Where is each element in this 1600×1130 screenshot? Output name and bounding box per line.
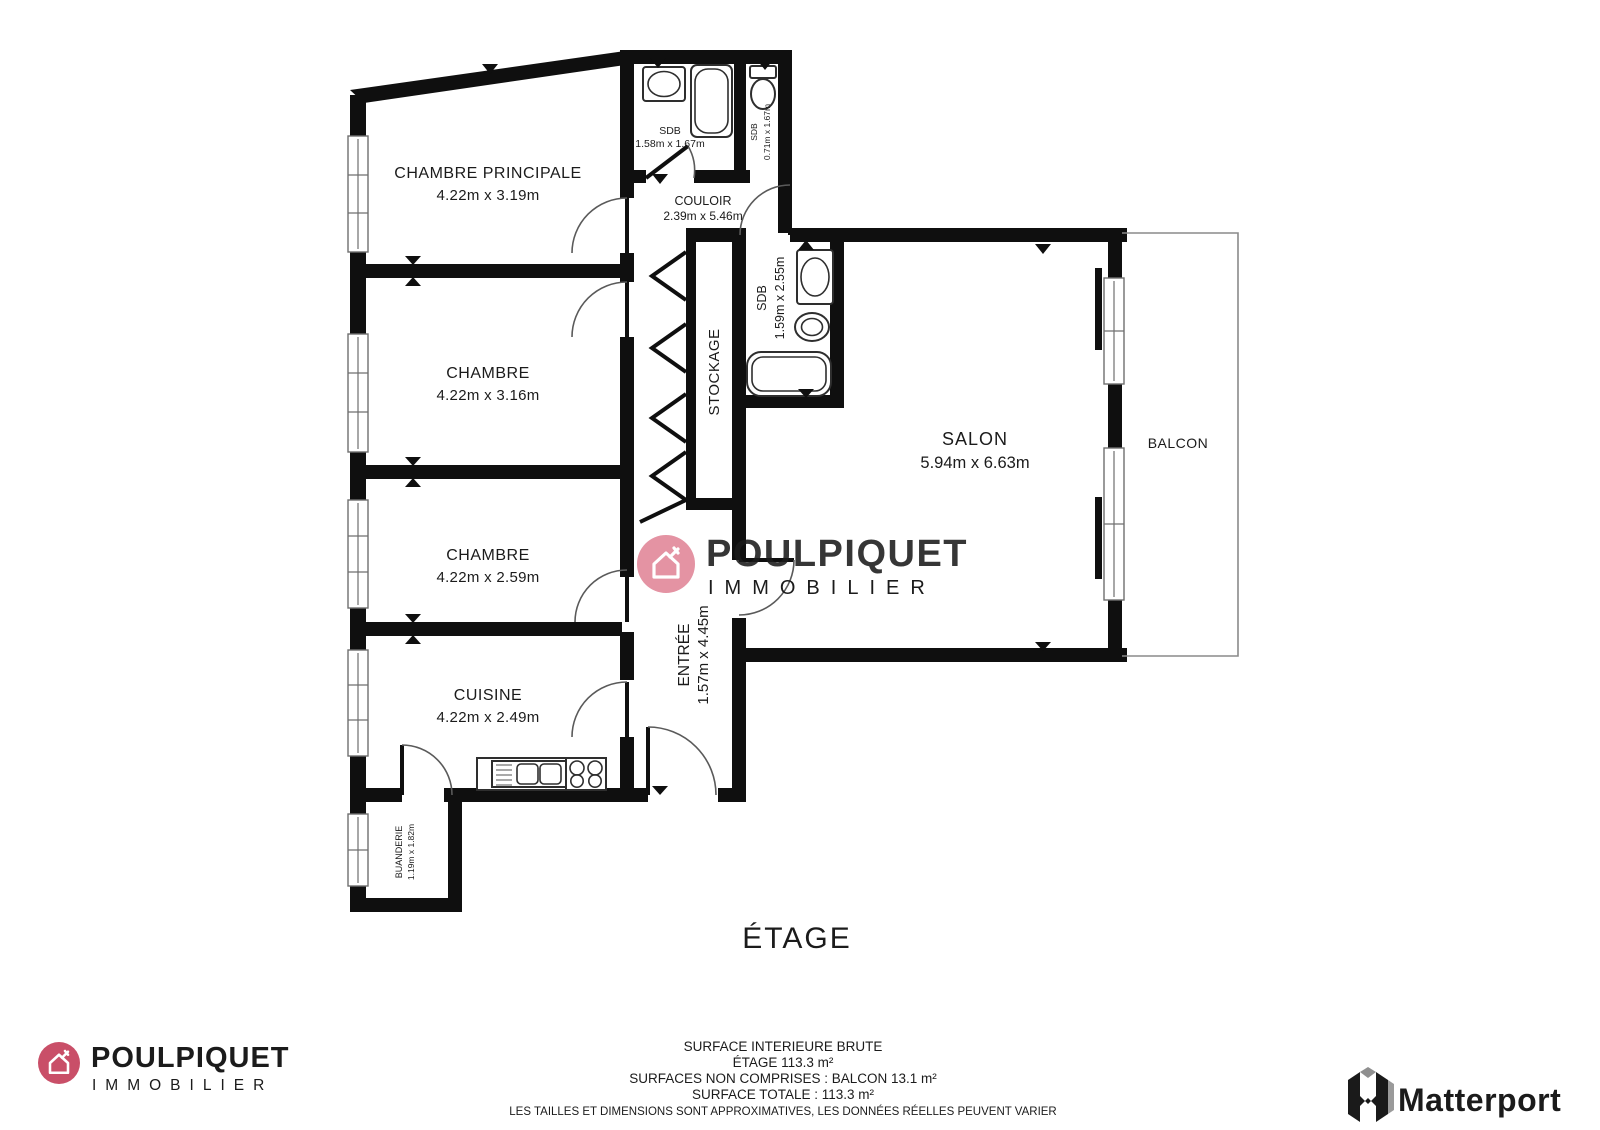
room-label-buanderie: BUANDERIE bbox=[394, 826, 404, 879]
wall-segment bbox=[1108, 384, 1122, 448]
wall-segment bbox=[620, 50, 634, 198]
wall-segment bbox=[448, 800, 462, 912]
wall-segment bbox=[364, 465, 622, 479]
wall-segment bbox=[732, 618, 746, 802]
matterport-label: Matterport bbox=[1398, 1082, 1561, 1118]
room-dims-buanderie: 1.19m x 1.82m bbox=[406, 824, 416, 880]
room-label-balcon: BALCON bbox=[1148, 435, 1209, 451]
kitchen-counter bbox=[477, 758, 606, 790]
summary-line2: ÉTAGE 113.3 m² bbox=[733, 1055, 834, 1070]
toilet-icon bbox=[795, 313, 829, 341]
wall-segment bbox=[620, 632, 634, 680]
toilet-icon bbox=[750, 66, 776, 109]
window bbox=[348, 650, 368, 756]
watermark-brand: POULPIQUET bbox=[706, 533, 968, 575]
wall-segment bbox=[686, 228, 746, 242]
wall-segment bbox=[350, 898, 462, 912]
room-dims-couloir: 2.39m x 5.46m bbox=[663, 209, 742, 223]
watermark-house-icon bbox=[637, 535, 695, 593]
summary-line3: SURFACES NON COMPRISES : BALCON 13.1 m² bbox=[629, 1071, 937, 1086]
footer-brand-name: POULPIQUET bbox=[91, 1042, 290, 1074]
room-label-sdb3: SDB bbox=[755, 285, 769, 311]
room-label-salon: SALON bbox=[942, 429, 1008, 449]
wall-segment bbox=[790, 228, 1127, 242]
brand-circle bbox=[38, 1042, 80, 1084]
window bbox=[348, 500, 368, 608]
kitchen-sink-icon bbox=[492, 761, 566, 787]
room-label-stockage: STOCKAGE bbox=[706, 328, 723, 415]
wall-segment bbox=[1108, 242, 1122, 278]
wall-segment bbox=[364, 264, 622, 278]
room-label-chambre2: CHAMBRE bbox=[446, 365, 530, 382]
room-dims-cuisine: 4.22m x 2.49m bbox=[436, 709, 539, 726]
wall-segment bbox=[746, 648, 1127, 662]
window bbox=[348, 814, 368, 886]
window bbox=[348, 334, 368, 452]
wall-segment bbox=[620, 253, 634, 282]
window bbox=[348, 136, 368, 252]
watermark-sub: IMMOBILIER bbox=[708, 577, 936, 599]
wall-segment bbox=[620, 337, 634, 577]
room-dims-sdb1: 1.58m x 1.67m bbox=[635, 138, 705, 150]
room-dims-chambre3: 4.22m x 2.59m bbox=[436, 569, 539, 586]
room-label-entree: ENTRÉE bbox=[676, 624, 693, 687]
room-dims-chambre2: 4.22m x 3.16m bbox=[436, 387, 539, 404]
wall-segment bbox=[686, 242, 696, 510]
summary-line1: SURFACE INTERIEURE BRUTE bbox=[684, 1039, 883, 1054]
room-dims-sdb3: 1.59m x 2.55m bbox=[773, 257, 787, 340]
wall-segment bbox=[350, 788, 402, 802]
floor-title: ÉTAGE bbox=[742, 922, 851, 955]
room-label-chambre-principale: CHAMBRE PRINCIPALE bbox=[394, 165, 581, 182]
floor-plan-svg: CHAMBRE PRINCIPALE 4.22m x 3.19m CHAMBRE… bbox=[0, 0, 1600, 1130]
wall-segment bbox=[732, 242, 746, 560]
room-label-couloir: COULOIR bbox=[675, 194, 732, 208]
wall-segment bbox=[364, 622, 622, 636]
room-dims-entree: 1.57m x 4.45m bbox=[695, 605, 712, 704]
sink-icon bbox=[643, 67, 685, 101]
window bbox=[1104, 448, 1124, 600]
wall-segment bbox=[694, 170, 750, 183]
sliding-door-mark bbox=[1095, 497, 1102, 579]
room-label-cuisine: CUISINE bbox=[454, 687, 522, 704]
floor-plan-page: CHAMBRE PRINCIPALE 4.22m x 3.19m CHAMBRE… bbox=[0, 0, 1600, 1130]
wall-segment bbox=[686, 498, 746, 510]
stove-icon bbox=[566, 758, 606, 790]
room-dims-salon: 5.94m x 6.63m bbox=[920, 454, 1029, 472]
summary-disclaimer: LES TAILLES ET DIMENSIONS SONT APPROXIMA… bbox=[509, 1105, 1057, 1118]
bathtub-icon bbox=[747, 352, 831, 396]
room-dims-chambre-principale: 4.22m x 3.19m bbox=[436, 187, 539, 204]
room-label-sdb2: SDB bbox=[749, 123, 759, 141]
wall-segment bbox=[1108, 600, 1122, 662]
wall-segment bbox=[734, 50, 746, 183]
summary-line4: SURFACE TOTALE : 113.3 m² bbox=[692, 1087, 875, 1102]
sliding-door-mark bbox=[1095, 268, 1102, 350]
wall-segment bbox=[620, 737, 634, 802]
sink-icon bbox=[797, 250, 833, 304]
footer-brand-sub: IMMOBILIER bbox=[92, 1077, 273, 1094]
room-label-sdb1: SDB bbox=[659, 125, 681, 137]
room-label-chambre3: CHAMBRE bbox=[446, 547, 530, 564]
room-dims-sdb2: 0.71m x 1.67m bbox=[762, 104, 772, 160]
wall-segment bbox=[634, 170, 646, 183]
window bbox=[1104, 278, 1124, 384]
bathtub-icon bbox=[691, 65, 732, 137]
